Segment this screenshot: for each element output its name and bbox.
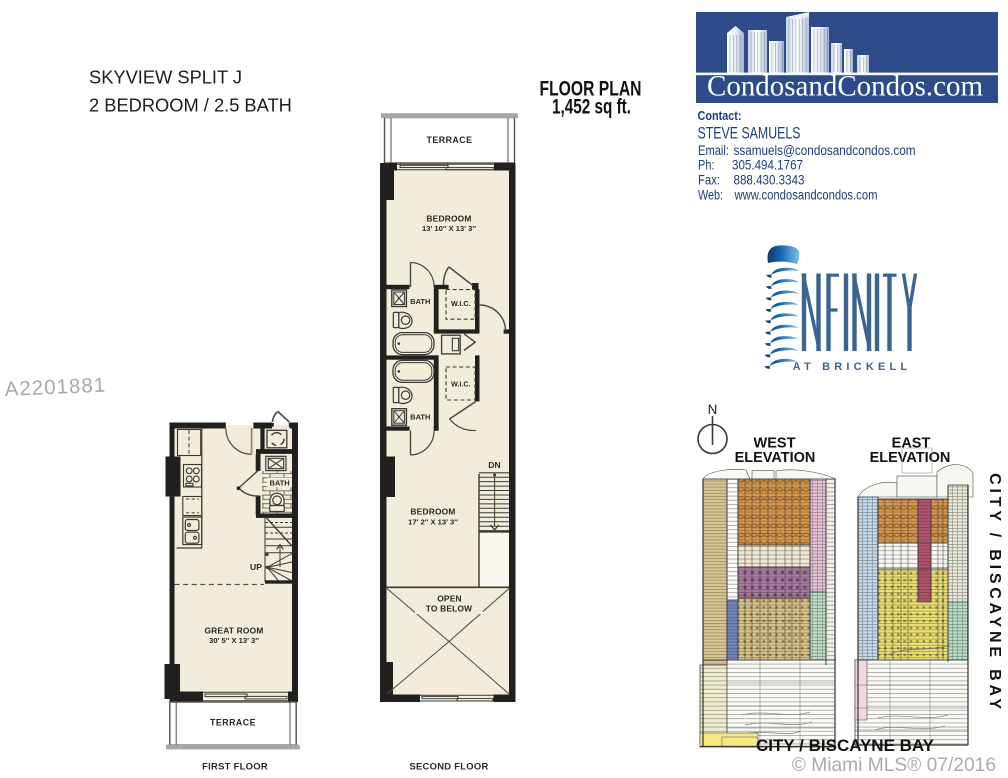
svg-text:N: N bbox=[708, 402, 718, 417]
svg-text:888.430.3343: 888.430.3343 bbox=[734, 173, 805, 188]
svg-text:W.I.C.: W.I.C. bbox=[451, 380, 471, 389]
svg-text:CITY / BISCAYNE BAY: CITY / BISCAYNE BAY bbox=[756, 736, 935, 755]
svg-text:ELEVATION: ELEVATION bbox=[870, 450, 951, 466]
svg-text:ELEVATION: ELEVATION bbox=[735, 450, 816, 466]
svg-text:CondosandCondos.com: CondosandCondos.com bbox=[707, 70, 983, 103]
svg-text:OPEN: OPEN bbox=[437, 594, 462, 604]
svg-text:BATH: BATH bbox=[269, 479, 289, 488]
svg-text:13′ 10″ X 13′ 3″: 13′ 10″ X 13′ 3″ bbox=[422, 224, 476, 233]
svg-text:TO BELOW: TO BELOW bbox=[426, 604, 473, 614]
svg-text:Contact:: Contact: bbox=[698, 108, 742, 123]
svg-text:1,452 sq ft.: 1,452 sq ft. bbox=[552, 96, 631, 119]
svg-text:Ph:: Ph: bbox=[698, 158, 715, 173]
svg-text:305.494.1767: 305.494.1767 bbox=[732, 158, 803, 173]
svg-text:www.condosandcondos.com: www.condosandcondos.com bbox=[734, 188, 878, 203]
svg-text:Email:: Email: bbox=[698, 143, 729, 158]
svg-text:UP: UP bbox=[250, 562, 262, 572]
svg-text:FIRST FLOOR: FIRST FLOOR bbox=[202, 761, 268, 772]
svg-text:BEDROOM: BEDROOM bbox=[410, 507, 455, 517]
svg-text:Web:: Web: bbox=[698, 188, 723, 203]
svg-text:30′ 5″ X 13′ 3″: 30′ 5″ X 13′ 3″ bbox=[209, 636, 259, 645]
svg-text:W.I.C.: W.I.C. bbox=[451, 299, 471, 308]
svg-text:17′ 2″ X 13′ 3″: 17′ 2″ X 13′ 3″ bbox=[408, 518, 458, 527]
svg-text:SECOND FLOOR: SECOND FLOOR bbox=[409, 761, 488, 772]
svg-text:SKYVIEW SPLIT J: SKYVIEW SPLIT J bbox=[89, 67, 242, 88]
svg-text:CITY / BISCAYNE BAY: CITY / BISCAYNE BAY bbox=[986, 473, 1003, 713]
svg-text:ssamuels@condosandcondos.com: ssamuels@condosandcondos.com bbox=[734, 143, 916, 158]
svg-text:2 BEDROOM / 2.5 BATH: 2 BEDROOM / 2.5 BATH bbox=[89, 95, 292, 116]
svg-text:TERRACE: TERRACE bbox=[426, 135, 472, 145]
svg-text:GREAT ROOM: GREAT ROOM bbox=[204, 626, 263, 636]
svg-text:DN: DN bbox=[488, 460, 500, 470]
svg-text:AT BRICKELL: AT BRICKELL bbox=[793, 361, 912, 373]
svg-text:Fax:: Fax: bbox=[698, 173, 720, 188]
svg-text:BATH: BATH bbox=[410, 297, 430, 306]
svg-text:STEVE SAMUELS: STEVE SAMUELS bbox=[698, 124, 801, 143]
svg-text:TERRACE: TERRACE bbox=[210, 718, 256, 728]
svg-text:© Miami MLS® 07/2016: © Miami MLS® 07/2016 bbox=[792, 755, 996, 776]
svg-text:BEDROOM: BEDROOM bbox=[426, 214, 471, 224]
svg-text:A2201881: A2201881 bbox=[4, 374, 106, 401]
svg-text:BATH: BATH bbox=[410, 413, 430, 422]
